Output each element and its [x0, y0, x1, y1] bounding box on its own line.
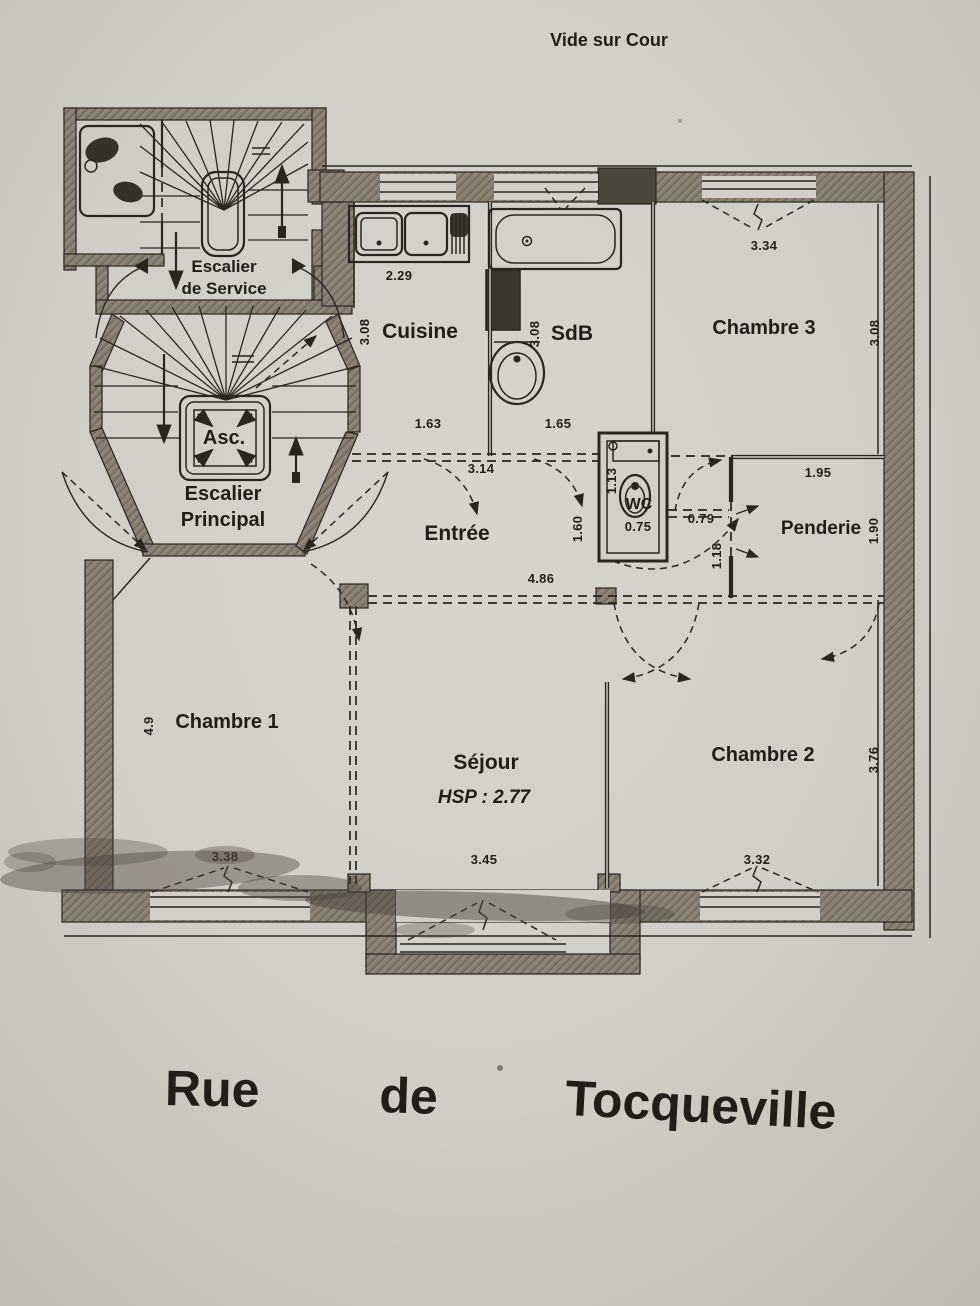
label-bedroom3: Chambre 3: [712, 317, 815, 339]
dim-wc-side: 1.60: [570, 516, 585, 543]
label-entry: Entrée: [424, 522, 489, 545]
label-service-stair-1: Escalier: [191, 257, 257, 276]
wall-pier: [598, 168, 656, 204]
label-bathroom: SdB: [551, 322, 593, 345]
street-word-de: de: [378, 1067, 438, 1125]
dim-bedroom2-window: 3.32: [744, 852, 771, 867]
label-living: Séjour: [453, 751, 518, 774]
dim-living-window: 3.45: [471, 852, 498, 867]
dim-wc-width: 0.75: [625, 519, 652, 534]
label-living-hsp: HSP : 2.77: [438, 787, 532, 808]
dim-bath-depth: 3.08: [527, 321, 542, 348]
label-bedroom1: Chambre 1: [175, 711, 278, 733]
label-closet: Penderie: [781, 518, 861, 539]
dim-wc-depth: 1.13: [604, 468, 619, 495]
label-wc: WC: [626, 496, 653, 513]
label-main-stair-1: Escalier: [185, 483, 262, 505]
label-service-stair-2: de Service: [181, 279, 266, 298]
dim-bath-width: 1.65: [545, 416, 572, 431]
dim-closet-wall: 1.18: [709, 543, 724, 570]
label-main-stair-2: Principal: [181, 509, 265, 531]
dim-kitchen-width: 1.63: [415, 416, 442, 431]
dim-closet-width: 1.95: [805, 465, 832, 480]
dim-hall-to-closet: 0.79: [688, 511, 715, 526]
label-kitchen: Cuisine: [382, 320, 458, 343]
label-vide-sur-cour: Vide sur Cour: [550, 30, 668, 50]
scanned-floor-plan: 2.29 3.08 1.63 3.08 1.65 3.34 3.08 3.14 …: [0, 0, 980, 1306]
dim-closet-depth: 1.90: [866, 518, 881, 545]
label-elevator: Asc.: [203, 427, 245, 449]
label-bedroom2: Chambre 2: [711, 744, 814, 766]
dim-bedroom2-depth: 3.76: [866, 747, 881, 774]
dim-kitchen-counter: 2.29: [386, 268, 413, 283]
dim-bedroom1-side: 4.9: [141, 717, 156, 736]
floor-plan-canvas: 2.29 3.08 1.63 3.08 1.65 3.34 3.08 3.14 …: [0, 0, 980, 1306]
dim-entry-top: 3.14: [468, 461, 495, 476]
dim-entry-width: 4.86: [528, 571, 555, 586]
street-word-rue: Rue: [165, 1060, 260, 1118]
dim-kitchen-depth: 3.08: [357, 319, 372, 346]
dim-bedroom3-depth: 3.08: [867, 320, 882, 347]
dim-bedroom3-window: 3.34: [751, 238, 778, 253]
